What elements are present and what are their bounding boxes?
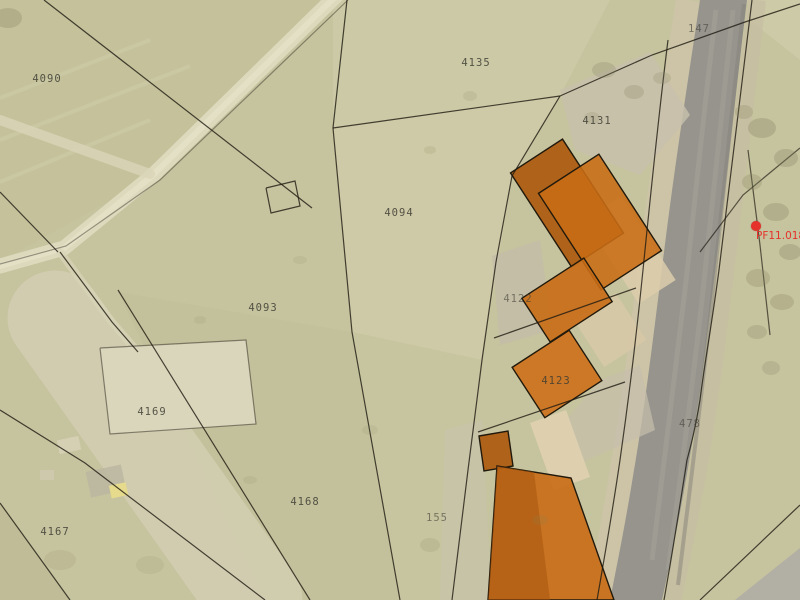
map-viewport[interactable]: 4090 4135 4131 4094 4093 4122 4123 4169 … <box>0 0 800 600</box>
survey-point-label: PF11.018 <box>756 230 800 242</box>
building-south-annex[interactable] <box>479 431 513 471</box>
map-imagery[interactable] <box>0 0 800 600</box>
survey-point-marker[interactable]: PF11.018 <box>751 221 761 231</box>
